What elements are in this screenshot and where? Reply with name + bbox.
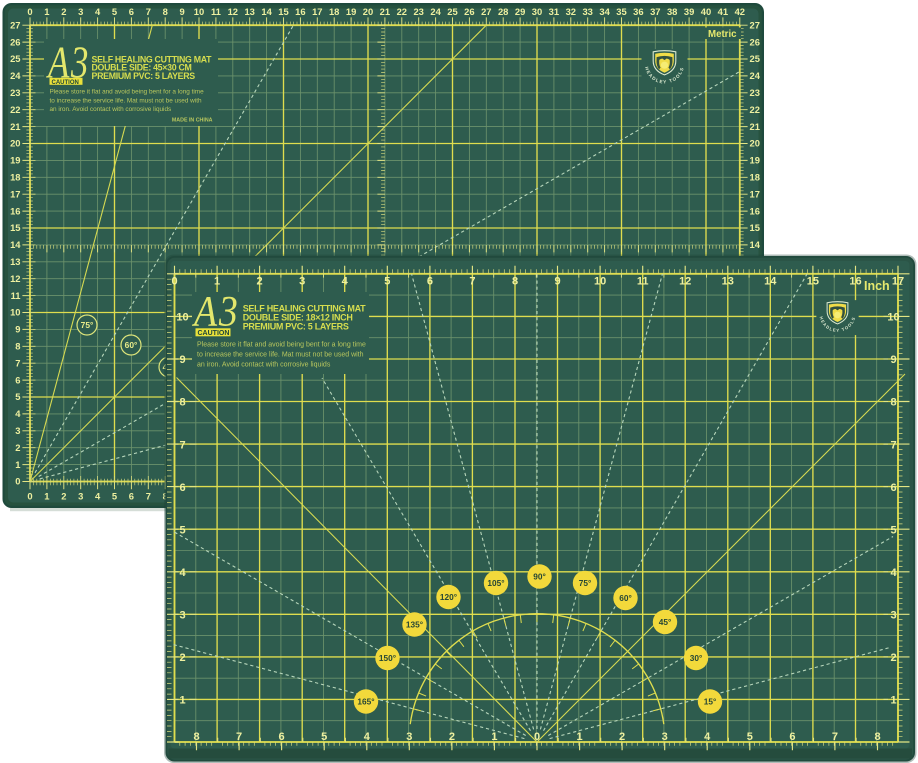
svg-text:3: 3 — [662, 731, 668, 743]
svg-text:22: 22 — [397, 6, 407, 17]
svg-text:to increase the service life.: to increase the service life. Mat must n… — [50, 97, 202, 104]
svg-text:26: 26 — [750, 36, 760, 47]
svg-text:37: 37 — [650, 6, 660, 17]
svg-text:22: 22 — [750, 104, 760, 115]
svg-text:75°: 75° — [81, 320, 94, 330]
svg-text:5: 5 — [321, 731, 327, 743]
svg-text:15°: 15° — [704, 697, 717, 707]
svg-text:PREMIUM PVC: 5 LAYERS: PREMIUM PVC: 5 LAYERS — [92, 71, 196, 81]
svg-text:19: 19 — [750, 155, 760, 166]
svg-text:0: 0 — [27, 6, 32, 17]
svg-text:19: 19 — [10, 155, 20, 166]
svg-text:20: 20 — [10, 138, 20, 149]
svg-text:42: 42 — [735, 6, 745, 17]
svg-text:4: 4 — [342, 276, 349, 288]
svg-text:9: 9 — [15, 324, 20, 335]
svg-text:7: 7 — [179, 439, 185, 451]
svg-text:39: 39 — [684, 6, 694, 17]
svg-text:18: 18 — [750, 172, 760, 183]
svg-text:15: 15 — [278, 6, 288, 17]
svg-text:1: 1 — [44, 6, 49, 17]
svg-text:Please store it flat and avoid: Please store it flat and avoid being ben… — [50, 89, 205, 96]
svg-text:4: 4 — [364, 731, 371, 743]
svg-text:6: 6 — [15, 374, 20, 385]
svg-text:36: 36 — [633, 6, 643, 17]
svg-text:1: 1 — [890, 695, 896, 707]
svg-text:15: 15 — [750, 222, 760, 233]
svg-text:6: 6 — [279, 731, 285, 743]
svg-text:135°: 135° — [406, 620, 423, 630]
svg-text:10: 10 — [594, 276, 606, 288]
svg-text:7: 7 — [146, 6, 151, 17]
svg-text:20: 20 — [750, 138, 760, 149]
svg-text:2: 2 — [61, 6, 66, 17]
svg-text:8: 8 — [512, 276, 518, 288]
svg-text:10: 10 — [176, 312, 188, 324]
svg-text:7: 7 — [146, 491, 151, 502]
svg-text:7: 7 — [832, 731, 838, 743]
svg-text:0: 0 — [27, 491, 32, 502]
svg-text:8: 8 — [163, 6, 168, 17]
svg-text:0: 0 — [171, 276, 177, 288]
svg-text:21: 21 — [380, 6, 390, 17]
svg-text:Metric: Metric — [708, 29, 737, 40]
svg-text:75°: 75° — [579, 578, 592, 588]
svg-text:1: 1 — [214, 276, 220, 288]
svg-text:31: 31 — [549, 6, 559, 17]
svg-text:14: 14 — [750, 239, 761, 250]
svg-text:16: 16 — [10, 205, 20, 216]
svg-text:4: 4 — [15, 408, 21, 419]
svg-text:26: 26 — [464, 6, 474, 17]
svg-text:7: 7 — [890, 439, 896, 451]
svg-text:8: 8 — [179, 397, 185, 409]
svg-text:105°: 105° — [487, 578, 504, 588]
svg-text:2: 2 — [890, 652, 896, 664]
svg-text:17: 17 — [892, 276, 904, 288]
svg-text:8: 8 — [890, 397, 896, 409]
svg-text:13: 13 — [722, 276, 734, 288]
svg-text:17: 17 — [312, 6, 322, 17]
svg-text:15: 15 — [10, 222, 20, 233]
svg-text:18: 18 — [10, 172, 20, 183]
svg-text:an iron. Avoid contact with co: an iron. Avoid contact with corrosive li… — [50, 106, 172, 113]
svg-text:27: 27 — [481, 6, 491, 17]
svg-text:4: 4 — [95, 6, 101, 17]
svg-text:6: 6 — [129, 6, 134, 17]
svg-text:4: 4 — [95, 491, 101, 502]
svg-text:16: 16 — [750, 205, 760, 216]
svg-text:21: 21 — [10, 121, 20, 132]
svg-text:8: 8 — [874, 731, 880, 743]
svg-text:10: 10 — [887, 312, 899, 324]
svg-text:60°: 60° — [619, 593, 632, 603]
svg-text:60°: 60° — [125, 340, 138, 350]
svg-text:12: 12 — [679, 276, 691, 288]
svg-text:3: 3 — [78, 491, 83, 502]
svg-text:11: 11 — [11, 290, 21, 301]
svg-text:0: 0 — [15, 476, 20, 487]
svg-text:6: 6 — [789, 731, 795, 743]
svg-text:9: 9 — [179, 354, 185, 366]
svg-text:9: 9 — [554, 276, 560, 288]
svg-text:19: 19 — [346, 6, 356, 17]
svg-text:10: 10 — [10, 307, 20, 318]
svg-text:3: 3 — [299, 276, 305, 288]
svg-text:2: 2 — [449, 731, 455, 743]
svg-text:35: 35 — [616, 6, 626, 17]
svg-text:14: 14 — [10, 239, 21, 250]
svg-text:41: 41 — [718, 6, 728, 17]
svg-text:6: 6 — [890, 482, 896, 494]
svg-text:5: 5 — [15, 391, 20, 402]
svg-text:14: 14 — [764, 276, 777, 288]
svg-text:7: 7 — [469, 276, 475, 288]
svg-text:5: 5 — [890, 524, 896, 536]
svg-text:16: 16 — [295, 6, 305, 17]
svg-text:PREMIUM PVC: 5 LAYERS: PREMIUM PVC: 5 LAYERS — [243, 321, 349, 331]
svg-text:165°: 165° — [357, 697, 374, 707]
svg-text:26: 26 — [10, 36, 20, 47]
svg-text:21: 21 — [750, 121, 760, 132]
svg-text:7: 7 — [15, 357, 20, 368]
svg-text:25: 25 — [10, 53, 20, 64]
svg-text:2: 2 — [61, 491, 66, 502]
svg-text:40: 40 — [701, 6, 711, 17]
svg-text:Please store it flat and avoid: Please store it flat and avoid being ben… — [197, 341, 366, 348]
svg-text:4: 4 — [704, 731, 711, 743]
svg-text:Inch: Inch — [864, 279, 890, 293]
svg-text:12: 12 — [10, 273, 20, 284]
svg-text:13: 13 — [10, 256, 20, 267]
svg-text:17: 17 — [750, 188, 760, 199]
svg-text:1: 1 — [179, 695, 185, 707]
svg-text:11: 11 — [211, 6, 221, 17]
svg-text:0: 0 — [534, 731, 540, 743]
svg-text:11: 11 — [637, 276, 649, 288]
svg-text:5: 5 — [179, 524, 185, 536]
svg-text:18: 18 — [329, 6, 339, 17]
svg-text:1: 1 — [577, 731, 583, 743]
svg-text:27: 27 — [10, 19, 20, 30]
svg-text:23: 23 — [10, 87, 20, 98]
svg-text:5: 5 — [384, 276, 390, 288]
svg-text:15: 15 — [807, 276, 819, 288]
svg-text:3: 3 — [15, 425, 20, 436]
svg-text:14: 14 — [261, 6, 272, 17]
svg-text:3: 3 — [890, 610, 896, 622]
svg-text:CAUTION: CAUTION — [52, 80, 79, 86]
svg-text:5: 5 — [112, 491, 117, 502]
svg-text:27: 27 — [750, 19, 760, 30]
svg-text:24: 24 — [430, 6, 441, 17]
svg-text:17: 17 — [10, 188, 20, 199]
svg-text:8: 8 — [193, 731, 199, 743]
svg-text:12: 12 — [228, 6, 238, 17]
svg-text:8: 8 — [15, 341, 20, 352]
svg-text:6: 6 — [179, 482, 185, 494]
svg-text:16: 16 — [849, 276, 861, 288]
svg-text:1: 1 — [44, 491, 49, 502]
svg-text:9: 9 — [890, 354, 896, 366]
svg-text:5: 5 — [747, 731, 753, 743]
svg-text:an iron. Avoid contact with co: an iron. Avoid contact with corrosive li… — [197, 361, 331, 368]
svg-text:2: 2 — [257, 276, 263, 288]
svg-text:2: 2 — [15, 442, 20, 453]
svg-text:6: 6 — [129, 491, 134, 502]
svg-text:25: 25 — [447, 6, 457, 17]
svg-text:30°: 30° — [690, 653, 703, 663]
svg-text:24: 24 — [750, 70, 761, 81]
svg-text:29: 29 — [515, 6, 525, 17]
svg-text:13: 13 — [244, 6, 254, 17]
svg-text:6: 6 — [427, 276, 433, 288]
svg-text:9: 9 — [179, 6, 184, 17]
svg-text:CAUTION: CAUTION — [198, 330, 230, 337]
svg-text:1: 1 — [15, 459, 20, 470]
svg-text:MADE IN CHINA: MADE IN CHINA — [172, 118, 213, 124]
svg-text:20: 20 — [363, 6, 373, 17]
svg-text:2: 2 — [179, 652, 185, 664]
svg-text:23: 23 — [750, 87, 760, 98]
svg-text:120°: 120° — [440, 592, 457, 602]
svg-text:3: 3 — [179, 610, 185, 622]
svg-text:33: 33 — [582, 6, 592, 17]
svg-text:10: 10 — [194, 6, 204, 17]
svg-text:150°: 150° — [379, 653, 396, 663]
svg-text:A3: A3 — [191, 287, 239, 335]
svg-text:30: 30 — [532, 6, 542, 17]
svg-text:25: 25 — [750, 53, 760, 64]
svg-text:1: 1 — [491, 731, 497, 743]
svg-text:3: 3 — [406, 731, 412, 743]
svg-text:4: 4 — [890, 567, 897, 579]
svg-text:4: 4 — [179, 567, 186, 579]
svg-text:90°: 90° — [533, 572, 546, 582]
svg-text:24: 24 — [10, 70, 21, 81]
svg-text:5: 5 — [112, 6, 117, 17]
svg-text:28: 28 — [498, 6, 508, 17]
svg-text:7: 7 — [236, 731, 242, 743]
svg-text:38: 38 — [667, 6, 677, 17]
svg-text:22: 22 — [10, 104, 20, 115]
svg-text:3: 3 — [78, 6, 83, 17]
svg-text:2: 2 — [619, 731, 625, 743]
svg-text:32: 32 — [566, 6, 576, 17]
svg-text:23: 23 — [413, 6, 423, 17]
svg-text:34: 34 — [599, 6, 610, 17]
svg-text:to increase the service life.: to increase the service life. Mat must n… — [197, 352, 364, 359]
svg-text:45°: 45° — [659, 617, 672, 627]
